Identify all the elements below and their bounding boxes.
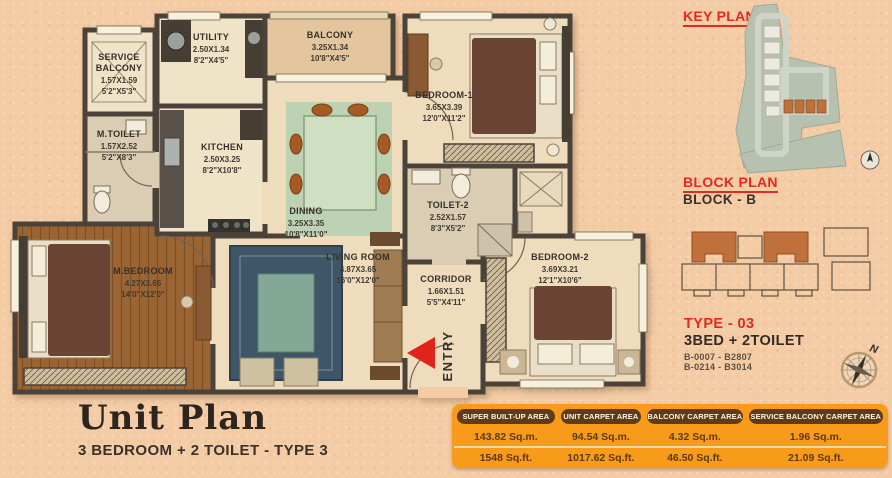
value-sqm: 94.54 Sq.m. <box>558 427 644 447</box>
entry-label: ENTRY <box>440 330 455 381</box>
col-header-balcony-carpet: BALCONY CARPET AREA <box>647 409 743 424</box>
svg-text:10'8"X11'0": 10'8"X11'0" <box>285 230 328 239</box>
label-bedroom-2: BEDROOM-2 <box>531 252 589 262</box>
svg-text:3.25X1.34: 3.25X1.34 <box>312 43 349 52</box>
block-name: BLOCK - B <box>683 192 756 207</box>
svg-text:8'2"X10'8": 8'2"X10'8" <box>203 166 242 175</box>
svg-text:4.27X3.65: 4.27X3.65 <box>125 279 162 288</box>
svg-text:5'5"X4'11": 5'5"X4'11" <box>427 298 466 307</box>
label-service-balcony: SERVICE <box>98 52 139 62</box>
compass-rose-icon: N <box>833 340 889 396</box>
label-dining: DINING <box>289 206 322 216</box>
col-header-service-balcony-carpet: SERVICE BALCONY CARPET AREA <box>749 409 883 424</box>
svg-text:10'8"X4'5": 10'8"X4'5" <box>311 54 350 63</box>
svg-text:16'0"X12'0": 16'0"X12'0" <box>336 276 380 285</box>
svg-text:14'0"X12'0": 14'0"X12'0" <box>121 290 165 299</box>
block-plan-map <box>676 222 881 302</box>
label-corridor: CORRIDOR <box>420 274 472 284</box>
label-toilet-2: TOILET-2 <box>427 200 469 210</box>
label-balcony: BALCONY <box>307 30 354 40</box>
unit-config-label: 3BED + 2TOILET <box>684 333 804 349</box>
svg-text:1.66X1.51: 1.66X1.51 <box>428 287 465 296</box>
svg-text:2.50X1.34: 2.50X1.34 <box>193 45 230 54</box>
label-m-bedroom: M.BEDROOM <box>113 266 173 276</box>
keyplan-compass-icon <box>861 151 879 169</box>
svg-text:3.69X3.21: 3.69X3.21 <box>542 265 579 274</box>
unit-range-2: B-0214 - B3014 <box>684 362 752 372</box>
unit-plan-brochure: { "title": { "heading": "Unit Plan", "su… <box>0 0 892 478</box>
svg-text:2.50X3.25: 2.50X3.25 <box>204 155 241 164</box>
block-plan-title: BLOCK PLAN <box>683 174 778 193</box>
label-m-toilet: M.TOILET <box>97 129 141 139</box>
value-sqft: 1017.62 Sq.ft. <box>558 446 644 468</box>
page-title: Unit Plan <box>78 398 328 438</box>
page-subtitle: 3 BEDROOM + 2 TOILET - TYPE 3 <box>78 442 328 459</box>
svg-text:5'2"X8'3": 5'2"X8'3" <box>102 153 137 162</box>
svg-text:BALCONY: BALCONY <box>96 63 143 73</box>
svg-text:5'2"X5'3": 5'2"X5'3" <box>102 87 137 96</box>
compass-north-label: N <box>868 342 880 356</box>
value-sqft: 21.09 Sq.ft. <box>746 446 886 468</box>
svg-text:3.25X3.35: 3.25X3.35 <box>288 219 325 228</box>
title-block: Unit Plan 3 BEDROOM + 2 TOILET - TYPE 3 <box>78 398 328 459</box>
label-living-room: LIVING ROOM <box>326 252 390 262</box>
svg-text:3.65X3.39: 3.65X3.39 <box>426 103 463 112</box>
unit-range-1: B-0007 - B2807 <box>684 352 752 362</box>
unit-type-label: TYPE - 03 <box>684 316 755 332</box>
svg-text:2.52X1.57: 2.52X1.57 <box>430 213 467 222</box>
label-bedroom-1: BEDROOM-1 <box>415 90 473 100</box>
svg-text:12'1"X10'6": 12'1"X10'6" <box>538 276 582 285</box>
svg-text:12'0"X11'2": 12'0"X11'2" <box>423 114 466 123</box>
label-utility: UTILITY <box>193 32 229 42</box>
floor-plan: ENTRY SERVICE BALCONY 1.57X1.59 5'2"X5'3… <box>0 0 670 400</box>
svg-text:8'2"X4'5": 8'2"X4'5" <box>194 56 229 65</box>
value-sqm: 4.32 Sq.m. <box>644 427 746 447</box>
label-kitchen: KITCHEN <box>201 142 243 152</box>
value-sqft: 46.50 Sq.ft. <box>644 446 746 468</box>
col-header-super-builtup: SUPER BUILT-UP AREA <box>457 409 555 424</box>
key-plan-map <box>720 2 890 174</box>
value-sqm: 143.82 Sq.m. <box>454 427 558 447</box>
col-header-unit-carpet: UNIT CARPET AREA <box>561 409 641 424</box>
area-summary-table: SUPER BUILT-UP AREA UNIT CARPET AREA BAL… <box>452 404 888 468</box>
value-sqft: 1548 Sq.ft. <box>454 446 558 468</box>
svg-text:8'3"X5'2": 8'3"X5'2" <box>431 224 466 233</box>
svg-text:1.57X2.52: 1.57X2.52 <box>101 142 138 151</box>
svg-text:1.57X1.59: 1.57X1.59 <box>101 76 138 85</box>
value-sqm: 1.96 Sq.m. <box>746 427 886 447</box>
svg-text:4.87X3.65: 4.87X3.65 <box>340 265 377 274</box>
